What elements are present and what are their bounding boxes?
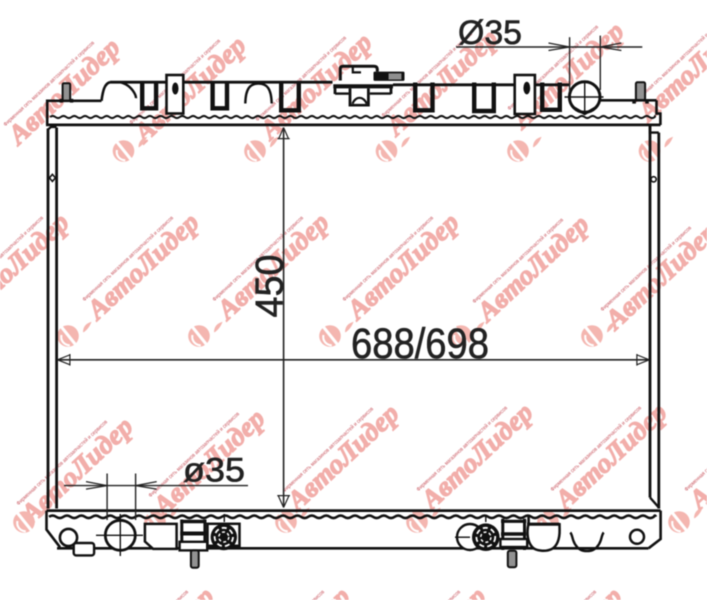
svg-text:450: 450 (248, 255, 291, 318)
svg-text:688/698: 688/698 (351, 320, 489, 368)
svg-text:ø35: ø35 (183, 452, 245, 490)
svg-text:Ø35: Ø35 (458, 14, 522, 52)
